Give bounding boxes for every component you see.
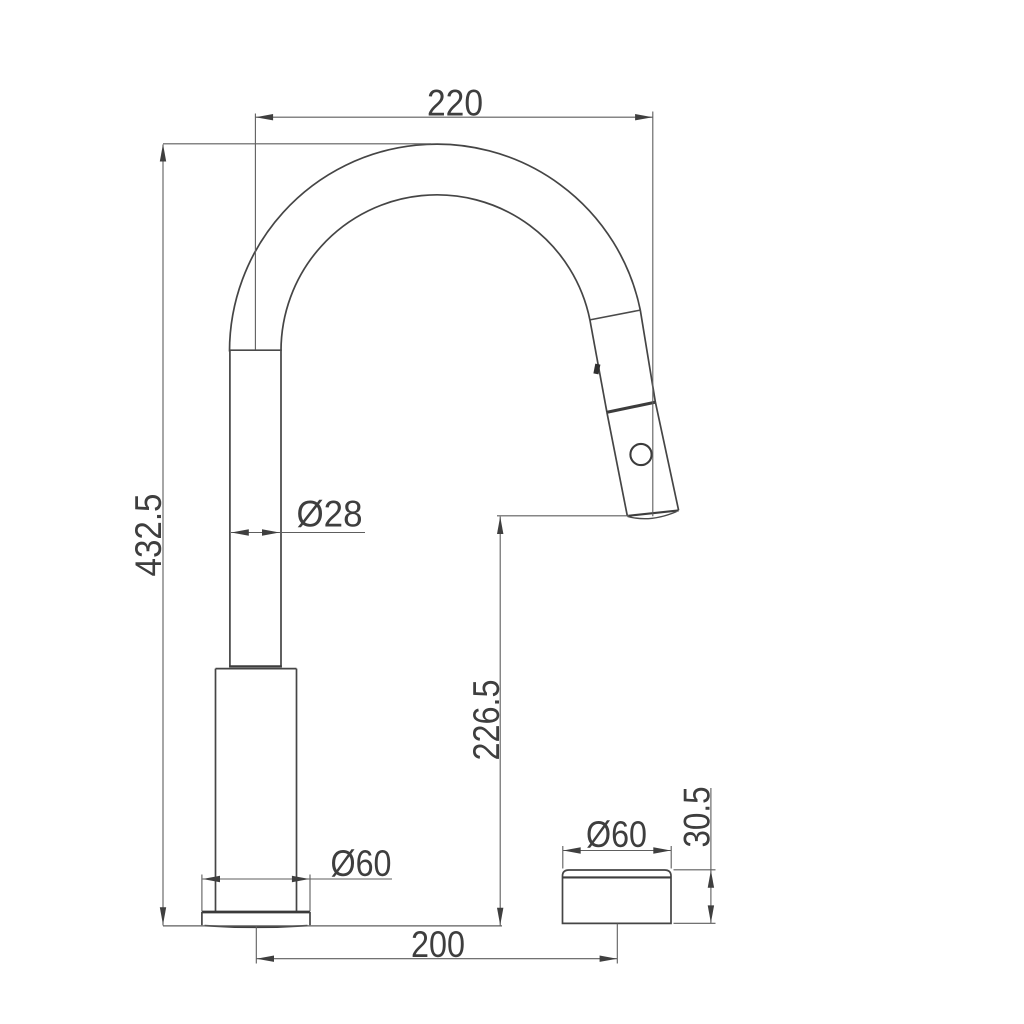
svg-text:Ø60: Ø60 xyxy=(586,814,647,855)
svg-text:226.5: 226.5 xyxy=(466,680,507,761)
svg-text:200: 200 xyxy=(411,924,465,965)
svg-text:432.5: 432.5 xyxy=(128,494,169,577)
svg-text:Ø60: Ø60 xyxy=(331,843,392,884)
svg-text:Ø28: Ø28 xyxy=(297,494,363,535)
svg-text:220: 220 xyxy=(427,83,483,124)
svg-text:30.5: 30.5 xyxy=(677,787,718,848)
